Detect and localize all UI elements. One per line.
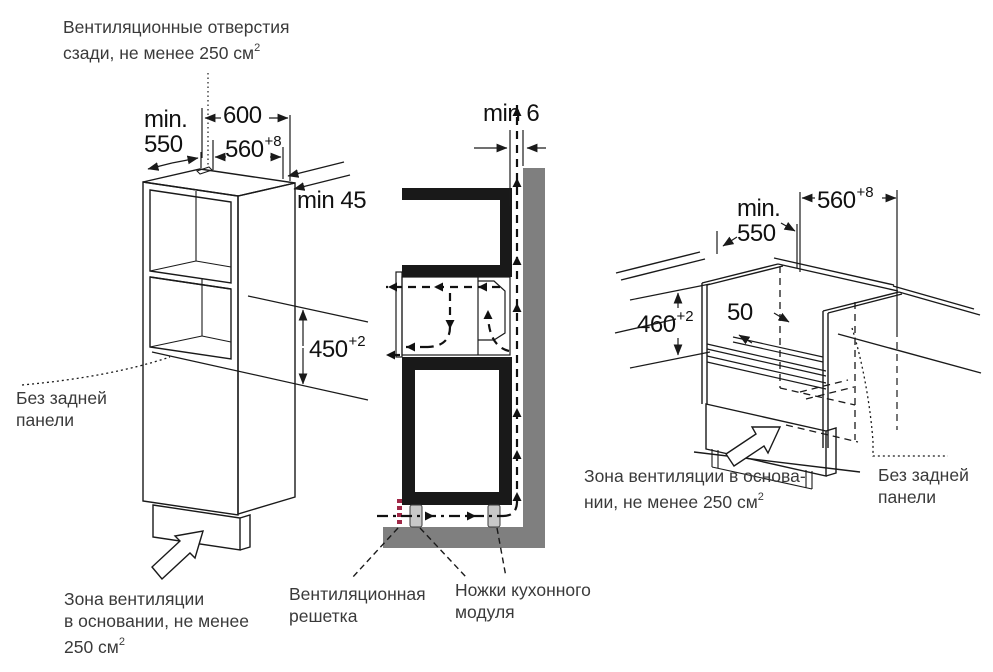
- dim-550-line: [148, 163, 172, 169]
- upper-niche-interior: [150, 191, 231, 271]
- plinth-side: [240, 515, 250, 550]
- dim-560-right: 560+8: [817, 182, 874, 213]
- lower-niche-opening: [150, 277, 231, 359]
- dim-min-45: min 45: [297, 188, 366, 213]
- dim-600: 600: [223, 103, 262, 128]
- upper-niche-opening: [150, 190, 231, 283]
- airflow-section-drawing: [352, 105, 546, 578]
- niche-floor-and-rails: [707, 337, 826, 389]
- no-back-panel-right-annotation: Без задней панели: [878, 464, 969, 508]
- no-back-panel-left-annotation: Без задней панели: [16, 387, 107, 431]
- vent-base-right-annotation: Зона вентиляции в основа- нии, не менее …: [584, 465, 806, 513]
- tall-cabinet-drawing: [143, 167, 295, 579]
- dim-min45-ticks: [288, 162, 344, 176]
- lower-niche-interior: [150, 278, 231, 347]
- floor: [383, 527, 545, 548]
- right-side-panel: [823, 292, 902, 448]
- left-side-panel: [702, 264, 783, 404]
- oven-installation-diagram: Вентиляционные отверстия сзади, не менее…: [0, 0, 993, 672]
- upper-cabinet-section: [402, 188, 512, 277]
- dim-560-left: 560+8: [225, 131, 282, 162]
- cabinet-top-vent-marker: [197, 167, 212, 174]
- dim-450: 450+2: [309, 331, 366, 362]
- grille-leader: [352, 528, 398, 578]
- base-niche-drawing: [615, 190, 981, 489]
- vent-back-annotation: Вентиляционные отверстия сзади, не менее…: [63, 16, 290, 64]
- dim-min-550-left: min. 550: [144, 107, 187, 157]
- hidden-back-edges: [780, 266, 858, 442]
- vent-base-left-annotation: Зона вентиляции в основании, не менее 25…: [64, 588, 249, 658]
- base-cabinet-section: [402, 357, 512, 505]
- dim-460: 460+2: [637, 306, 694, 337]
- wall: [523, 168, 545, 548]
- no-back-leader-dotted-right: [852, 328, 948, 456]
- no-back-leader-dotted: [22, 357, 170, 385]
- dim-50: 50: [727, 300, 753, 325]
- dim-min-550-right: min. 550: [737, 196, 780, 246]
- vent-grille-marks: [397, 499, 402, 524]
- vent-grille-annotation: Вентиляционная решетка: [289, 583, 426, 627]
- dim-min-6: min 6: [483, 101, 539, 126]
- module-feet-annotation: Ножки кухонного модуля: [455, 579, 591, 623]
- dim-450-ext-top: [248, 296, 368, 322]
- cabinet-side-face: [238, 183, 295, 514]
